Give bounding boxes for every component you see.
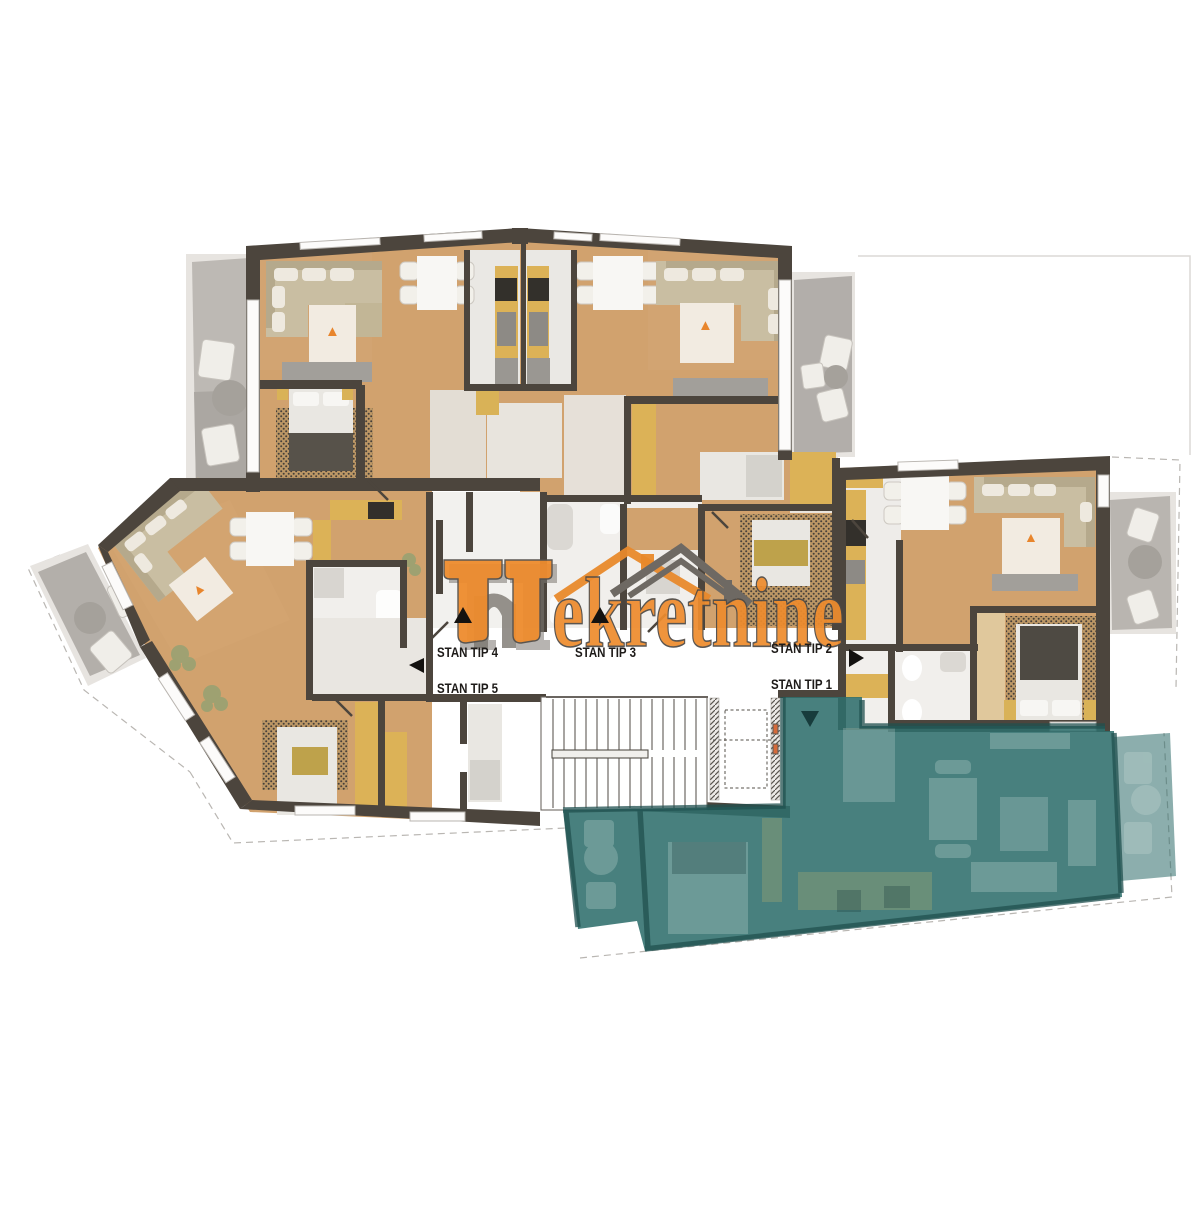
svg-text:STAN TIP 1: STAN TIP 1: [771, 676, 832, 692]
svg-text:▲: ▲: [698, 317, 713, 334]
svg-text:STAN TIP 3: STAN TIP 3: [575, 644, 636, 660]
svg-text:STAN TIP 2: STAN TIP 2: [771, 640, 832, 656]
svg-text:STAN TIP 5: STAN TIP 5: [437, 680, 498, 696]
svg-text:▲: ▲: [1024, 529, 1038, 545]
svg-text:▲: ▲: [325, 323, 340, 340]
svg-text:STAN TIP 4: STAN TIP 4: [437, 644, 498, 660]
